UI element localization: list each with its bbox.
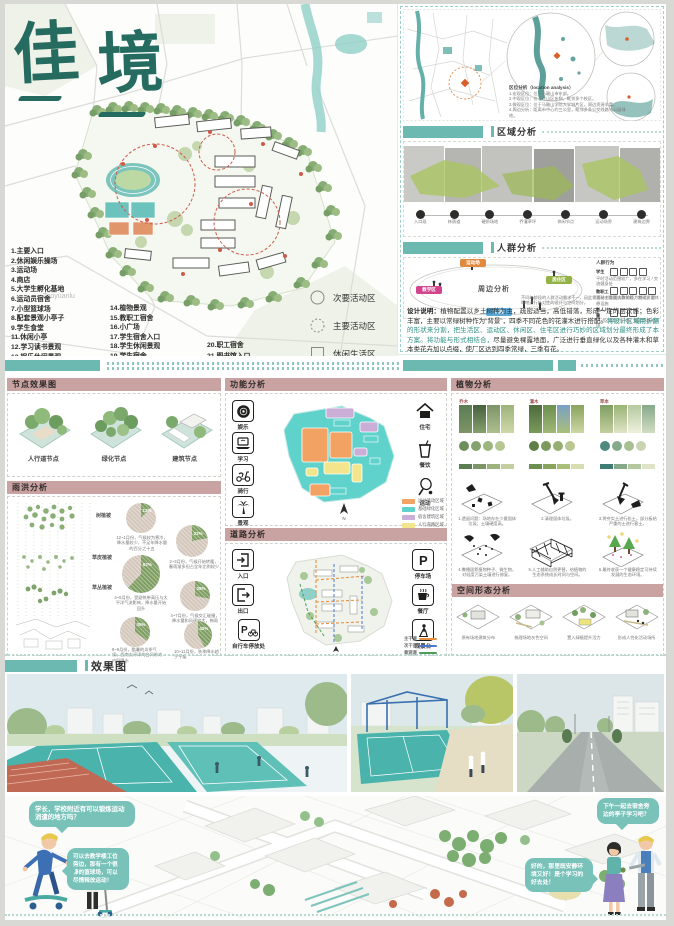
primary-zone-icon [310, 318, 325, 333]
plan-legend: 1.主要入口 2.休闲娱乐操场 3.运动场 4.商店 5.大学生孵化基地 6.运… [11, 247, 64, 362]
tree-thumb [471, 441, 481, 451]
plant-photo [614, 405, 627, 433]
title-char-1: 佳 [11, 18, 80, 87]
color-swatch [487, 464, 500, 469]
behavior-note: 平时活动范围较广，多在学习 / 交流健身处 [596, 276, 660, 287]
soil-step: 5.人工辅助自然更替，给植物的生态系统成长时间与空间。 [526, 531, 588, 578]
header-tick [85, 660, 88, 671]
legend-swatch [402, 515, 415, 520]
node-chip: 绿化节点 [83, 400, 145, 463]
form-diagram-4 [612, 601, 662, 635]
masterplan-area: Taoyuanlu 佳 境 1.主要入口 2.休闲娱乐操场 3.运动场 4.商店… [5, 4, 398, 374]
speech-bubble-1: 学长，学校附近有可以锻炼运动消遣的地方吗？ [29, 801, 135, 827]
function-icon-study: 学习 [232, 432, 254, 463]
header-tick [491, 126, 494, 137]
nodes-section-header: 节点效果图 [7, 378, 221, 391]
north-arrow: N [338, 502, 350, 521]
tree-thumb [565, 441, 575, 451]
divider-teal-bar [5, 360, 100, 371]
legend-item: 8.配套景观小亭子 [11, 314, 64, 324]
plan-legend-col2: 14.植物景观 15.教职工宿舍 16.小广场 17.学生宿舍入口 18.学生休… [110, 304, 160, 362]
drink-icon [417, 440, 433, 458]
design-poster: Taoyuanlu 佳 境 1.主要入口 2.休闲娱乐操场 3.运动场 4.商店… [0, 0, 674, 926]
legend-item: 3.运动场 [11, 266, 64, 276]
tree-thumb [600, 441, 610, 451]
title-swash-2 [98, 112, 147, 117]
form-diagram-1 [453, 601, 503, 635]
coffee-icon [415, 588, 431, 602]
color-swatch [600, 464, 613, 469]
plant-photo [487, 405, 500, 433]
legend-item: 7.小型篮球场 [11, 305, 64, 315]
function-zoning-map [266, 396, 406, 524]
form-section-header: 空间形态分析 [452, 584, 663, 597]
timeline-dot [450, 210, 459, 219]
function-icon-riding: 骑行 [232, 464, 254, 495]
bubble-diagram-title: 周边分析 [478, 284, 510, 294]
legend-item: 11.休闲小亭 [11, 333, 64, 343]
location-notes: 区位分析（location analysis） 1.宏观区位：位于马鞍山市东部。… [509, 85, 631, 118]
timeline-dot [561, 210, 570, 219]
color-swatch [614, 464, 627, 469]
plan-track [106, 163, 160, 197]
function-section-header: 功能分析 [225, 378, 447, 391]
divider-dots [107, 367, 399, 370]
timeline-dot [485, 210, 494, 219]
pie-caption: 12~1月份，气候较为寒冷，降水量较少，不足年降水量的百分之十五 [116, 535, 168, 551]
plant-group-shrubs: 灌木 [529, 399, 585, 474]
tree-thumb [553, 441, 563, 451]
color-swatch [473, 464, 486, 469]
crowd-analysis-header: 人群分析 [403, 241, 661, 254]
node-teaching: 教学区 [416, 286, 442, 294]
road-icon-exit: 出口 [232, 584, 254, 615]
form-step: 梳理场地灰色空间 [506, 601, 556, 640]
timeline-dot [523, 210, 532, 219]
rain-pie-6: 42% [184, 621, 212, 649]
footer-divider [5, 914, 666, 916]
activity-icon [639, 268, 647, 276]
divider-teal-bar [558, 360, 576, 371]
viewpoint-icon [416, 623, 430, 637]
renders-divider [5, 654, 666, 656]
divider-dots [107, 362, 399, 365]
tree-thumb [459, 441, 469, 451]
record-icon [236, 404, 251, 419]
palm-icon [236, 500, 251, 515]
rain-pie-5: 35% [120, 617, 150, 647]
color-swatch [628, 464, 641, 469]
tree-thumb [624, 441, 634, 451]
plant-photo [642, 405, 655, 433]
site-panorama [404, 144, 660, 206]
legend-swatch [402, 507, 415, 512]
form-diagram-2 [506, 601, 556, 635]
plants-analysis-box: 乔木 灌木 [451, 393, 664, 656]
legend-item: 14.植物景观 [110, 304, 160, 314]
timeline-dot [599, 210, 608, 219]
vegetation-layers-diagram [10, 499, 94, 653]
activity-icon [620, 268, 628, 276]
speech-bubble-4: 好的，那里既安静环境又好！是个学习的好去处！ [525, 858, 593, 892]
form-step: 原有场地建筑分布 [453, 601, 503, 640]
legend-item: 2.休闲娱乐操场 [11, 257, 64, 267]
legend-item: 18.学生休闲景观 [110, 342, 160, 352]
divider-teal-bar [403, 360, 553, 371]
racket-icon [416, 478, 434, 496]
function-icon-entertainment: 娱乐 [232, 400, 254, 431]
plant-group-trees: 乔木 [459, 399, 515, 474]
plant-photo [557, 405, 570, 433]
pie-caption: 2~3月份，气候开始转暖，春雨渐多但占全年比例较少 [168, 559, 220, 570]
speech-bubble-3: 下午一起去宿舍旁边的亭子学习吧？ [597, 798, 659, 824]
tree-thumb [541, 441, 551, 451]
timeline-stop: 硬质场地 [481, 210, 498, 224]
timeline-stop: 林荫道 [448, 210, 461, 224]
form-step: 置入绿植提升活力 [559, 601, 609, 640]
timeline-stop: 入口段 [414, 210, 427, 224]
road-analysis-box: 入口 出口 P 自行车停放处 [225, 543, 447, 656]
timeline-dot [637, 210, 646, 219]
behavior-row: 学生 [596, 268, 660, 276]
zone-legend-item: 次要活动区 [310, 290, 376, 305]
axon-scene: 学长，学校附近有可以锻炼运动消遣的地方吗？ 可以去教学楼工位旁边，那有一个很棒的… [5, 796, 666, 918]
house-icon [415, 402, 435, 420]
legend-swatch [402, 523, 415, 528]
timeline-stop: 运动场旁 [595, 210, 612, 224]
soil-step: 6.最终收获一个健康稳定可持续发展的生态环境。 [597, 531, 659, 578]
soil-steps-row-2: 4.撒播固氮植物种子、微生物，对轻度污染土壤进行修复。 5.人工辅助自然更替，给… [452, 531, 663, 578]
plant-photo [543, 405, 556, 433]
layer-label: 树植被 [96, 513, 111, 520]
plant-photo [501, 405, 514, 433]
bike-parking-icon: P [240, 623, 258, 637]
function-icon-residence: 住宅 [414, 400, 436, 431]
parking-icon: P [417, 553, 429, 567]
function-analysis-box: 娱乐 学习 骑行 景观 [225, 393, 447, 526]
legend-item: 15.教职工宿舍 [110, 314, 160, 324]
laptop-icon [235, 436, 251, 450]
enter-icon [236, 553, 250, 567]
node-residential: 居住区 [546, 276, 572, 284]
timeline-dot [416, 210, 425, 219]
rain-section-header: 雨洪分析 [7, 481, 221, 494]
form-diagrams: 原有场地建筑分布 梳理场地灰色空间 置入绿植提升活力 形成人性化活动场所 [452, 601, 663, 640]
legend-row: 宿舍建筑区域 [402, 514, 444, 520]
region-analysis-header: 区域分析 [403, 125, 661, 138]
greening-node-diagram [83, 400, 145, 452]
secondary-zone-icon [310, 290, 325, 305]
dotted-rule [542, 247, 661, 249]
render-canopy-court [351, 674, 513, 792]
svg-text:P: P [419, 553, 428, 567]
node-chip: 人行道节点 [12, 400, 74, 463]
timeline-stop: 休闲节点 [557, 210, 574, 224]
render-courts-wide [7, 674, 347, 792]
divider-band [5, 356, 666, 376]
form-diagram-3 [559, 601, 609, 635]
zone-legend-item: 主要活动区 [310, 318, 376, 333]
legend-item: 6.运动员宿舍 [11, 295, 64, 305]
legend-item: 20.职工宿舍 [207, 340, 250, 351]
laptop-man-figure [629, 832, 665, 918]
tree-thumb [495, 441, 505, 451]
color-swatch [501, 464, 514, 469]
render-road-perspective [517, 674, 664, 792]
legend-row: 次干道 [404, 643, 440, 649]
activity-icon [610, 268, 618, 276]
design-note: 设计说明：植物配置以乡土树种为主，疏密适当，高低错落，形成一定的层次感；色彩丰富… [407, 307, 659, 355]
timeline-stop: 建筑边界 [633, 210, 650, 224]
north-arrow-icon [338, 502, 350, 516]
legend-item: 12.学习读书景观 [11, 343, 64, 353]
function-icon-dining: 餐饮 [414, 438, 436, 469]
plant-group-grasses: 草本 [600, 399, 656, 474]
color-swatch [642, 464, 655, 469]
legend-item: 4.商店 [11, 276, 64, 286]
header-tick [491, 242, 494, 253]
function-legend: 运动活动区域 基础绿化区域 宿舍建筑区域 人行道路区域 [402, 498, 444, 530]
road-icon-parking: P 停车场 [412, 549, 434, 580]
plant-photo [473, 405, 486, 433]
walkway-node-diagram [12, 400, 74, 452]
road-icon-entrance: 入口 [232, 549, 254, 580]
node-chip: 建筑节点 [154, 400, 216, 463]
rain-analysis-box: 树植被 草皮植被 草丛植被 12% 12~1月份，气候较为寒冷，降水量较少，不足… [7, 496, 221, 656]
soil-step: 2.清理固体垃圾。 [526, 482, 588, 527]
svg-text:P: P [241, 625, 248, 636]
debris-icon [456, 482, 506, 516]
color-swatch [543, 464, 556, 469]
poster-sheet: Taoyuanlu 佳 境 1.主要入口 2.休闲娱乐操场 3.运动场 4.商店… [5, 4, 666, 920]
legend-item: 9.学生食堂 [11, 324, 64, 334]
color-swatch [557, 464, 570, 469]
form-step: 形成人性化活动场所 [612, 601, 662, 640]
rain-pie-2: 22% [176, 525, 208, 557]
road-section-header: 道路分析 [225, 528, 447, 541]
woman-figure [597, 840, 633, 918]
shovel-icon [526, 482, 576, 516]
road-icon-bike-parking: P 自行车停放处 [232, 619, 265, 650]
tree-thumb [529, 441, 539, 451]
rain-pie-1: 12% [126, 503, 156, 533]
soil-steps-row-1: 1.遗留问题：场地存在少量固体垃圾；土壤硬度高。 2.清理固体垃圾。 3.将夯实… [452, 482, 663, 527]
healthy-trees-icon [597, 531, 647, 567]
plant-palettes: 乔木 灌木 [452, 394, 663, 474]
site-panorama-box: 入口段 林荫道 硬质场地 乔灌草坪 休闲节点 运动场旁 建筑边界 [403, 141, 661, 237]
legend-item: 1.主要入口 [11, 247, 64, 257]
divider-dots [581, 364, 664, 367]
legend-swatch [402, 499, 415, 504]
speech-bubble-2: 可以去教学楼工位旁边，那有一个很棒的篮球场，可以尽情释放运动！ [67, 848, 129, 890]
function-icon-landscape: 景观 [232, 496, 254, 527]
soil-step: 1.遗留问题：场地存在少量固体垃圾；土壤硬度高。 [456, 482, 518, 527]
timeline-stop: 乔灌草坪 [519, 210, 536, 224]
legend-item: 16.小广场 [110, 323, 160, 333]
plants-section-header: 植物分析 [451, 378, 664, 391]
tree-thumb [612, 441, 622, 451]
color-swatch [529, 464, 542, 469]
title-swash-1 [18, 96, 63, 101]
seeding-hands-icon [456, 531, 506, 567]
node-sports: 运动场 [460, 259, 486, 267]
plant-photo [529, 405, 542, 433]
color-swatch [571, 464, 584, 469]
renders-header: 效果图 [5, 659, 405, 672]
poster-title: 佳 境 [13, 20, 163, 86]
building-node-diagram [154, 400, 216, 452]
soil-step: 3.将夯实土进行松土，部分板结严重的土进行客土。 [597, 482, 659, 527]
soil-step: 4.撒播固氮植物种子、微生物，对轻度污染土壤进行修复。 [456, 531, 518, 578]
rain-pie-3: 62% [122, 555, 160, 593]
legend-line [419, 645, 437, 647]
legend-line [419, 638, 437, 640]
title-char-2: 境 [97, 29, 165, 97]
tree-thumb [483, 441, 493, 451]
legend-row: 运动活动区域 [402, 498, 444, 504]
layer-label: 草皮植被 [92, 555, 112, 562]
legend-row: 主干道 [404, 636, 440, 642]
plant-photo [459, 405, 472, 433]
layer-label: 草丛植被 [92, 585, 112, 592]
tree-thumb [636, 441, 646, 451]
behavior-title: 人群行为 [596, 260, 660, 266]
dotted-rule [542, 131, 661, 133]
plant-photo [628, 405, 641, 433]
location-line: 4.周边分析：距离市中心约三公里，毗邻多条公交线路与公园绿地。 [509, 107, 631, 118]
behavior-footnote: 不同年龄段的人群活动需求不一，因此需要针对各类人群的行为特点，对场地进行针对性的… [521, 295, 659, 306]
road-map [270, 546, 404, 654]
pie-caption: 4~5月份，受副热带高压与太平洋气流影响，降水量开始回升 [114, 595, 168, 611]
design-note-label: 设计说明： [407, 308, 440, 315]
legend-item: 5.大学生孵化基地 [11, 285, 64, 295]
plant-photo [600, 405, 613, 433]
scooter-icon [235, 468, 251, 482]
header-bar [403, 126, 483, 138]
legend-row: 基础绿化区域 [402, 506, 444, 512]
fence-icon [526, 531, 576, 567]
activity-icon [629, 268, 637, 276]
panorama-timeline: 入口段 林荫道 硬质场地 乔灌草坪 休闲节点 运动场旁 建筑边界 [404, 206, 660, 224]
loosen-soil-icon [597, 482, 647, 516]
exit-icon [236, 588, 250, 602]
rain-pie-4: 28% [180, 581, 210, 611]
analysis-panel: 区位分析（location analysis） 1.宏观区位：位于马鞍山市东部。… [400, 6, 664, 352]
color-swatch [459, 464, 472, 469]
road-icon-restaurant: 餐厅 [412, 584, 434, 615]
plant-photo [571, 405, 584, 433]
header-bar [5, 660, 77, 672]
header-bar [403, 242, 483, 254]
node-chips-box: 人行道节点 绿化节点 建筑节点 [7, 393, 221, 477]
legend-item: 17.学生宿舍入口 [110, 333, 160, 343]
